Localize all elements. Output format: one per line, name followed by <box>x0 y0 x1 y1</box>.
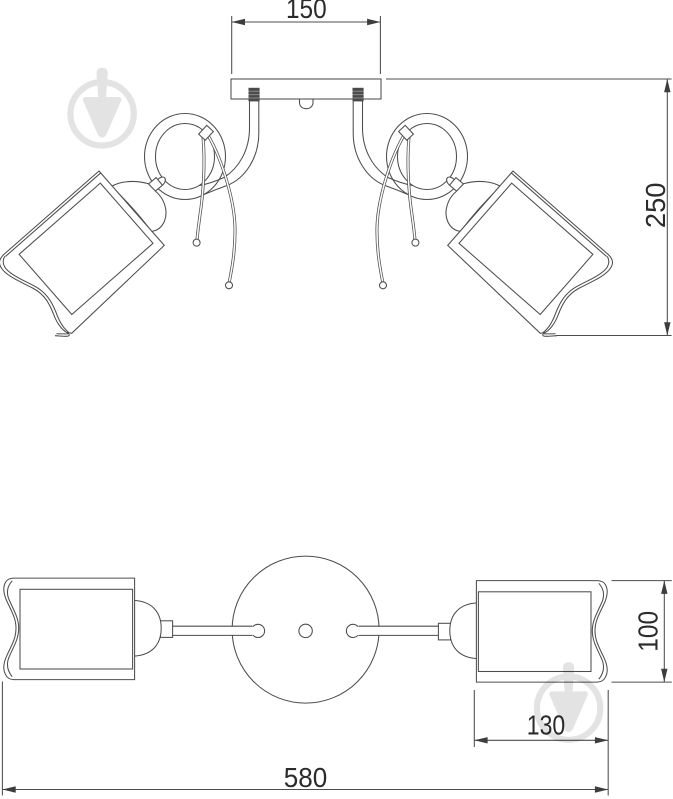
svg-text:250: 250 <box>640 183 671 229</box>
svg-text:100: 100 <box>633 611 664 652</box>
svg-text:150: 150 <box>286 0 327 24</box>
svg-text:580: 580 <box>284 762 328 793</box>
